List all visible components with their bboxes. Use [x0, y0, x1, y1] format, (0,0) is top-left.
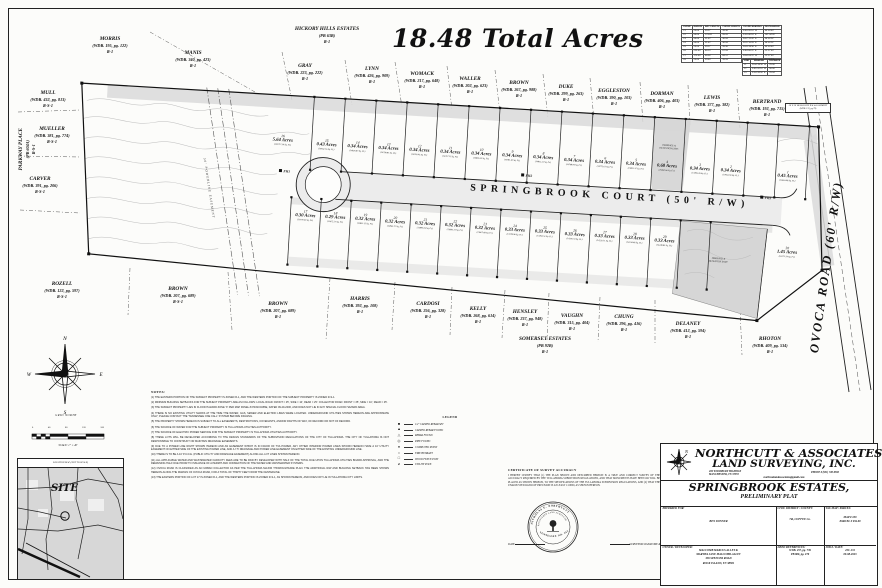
compass-east: E [98, 373, 102, 378]
certification-block: CERTIFICATE OF SURVEY ACCURACY I HEREBY … [508, 468, 660, 488]
neighbor-deed-ref: (WDB. 217, pg. 648) [404, 78, 439, 84]
compass-west: W [27, 373, 32, 378]
neighbor-parcel-label: VAUGHN (WDB. 315, pg. 404) R-1 [554, 313, 589, 331]
legend-item-label: FIRE HYDRANT [415, 452, 433, 455]
legend-block: LEGEND ■ 1/2" CAPPED REBAR SET ▲ CAPPED … [396, 415, 504, 468]
neighbor-parcel-label: LYNN (WDB. 426, pg. 909) R-1 [354, 66, 389, 84]
neighbor-zoning: R-1 [175, 63, 210, 69]
neighbor-deed-ref: (WDB. 377, pg. 382) [694, 102, 729, 108]
company-row: N NORTHCUTT & ASSOCIATES LAND SURVEYING,… [661, 444, 877, 481]
project-subtitle: PRELIMINARY PLAT [661, 494, 877, 500]
fire-hydrant-marker: FH3 [760, 196, 771, 201]
note-item: (8) THESE LOTS WILL BE DEVELOPED ACCORDI… [151, 436, 389, 443]
neighbor-name: DELANEY [670, 321, 705, 328]
prepared-for-cell: PREPARED FOR: BEN DONNER [661, 506, 777, 546]
neighbor-zoning: R-1 [752, 349, 787, 355]
neighbor-zoning: R-S-1 [30, 103, 65, 109]
owner-line: ROCK ISLAND, TN 38581 [661, 562, 776, 566]
neighbor-zoning: R-1 [644, 104, 679, 110]
neighbor-zoning: R-1 [460, 319, 495, 325]
neighbor-zoning: R-S-1 [44, 294, 79, 300]
neighbor-name: PARKWAY PLACE [18, 128, 25, 170]
surveyor-seal: NICHOLAS E. NORTHCUTT REGISTERED LAND SU… [525, 499, 581, 555]
legend-symbol-icon: ○ [396, 452, 402, 456]
grid-north-caption: GRID NORTH [30, 414, 102, 417]
neighbor-parcel-label: RHOTON (WDB. 409, pg. 534) R-1 [752, 336, 787, 354]
neighbor-parcel-label: CARVER (WDB. 391, pg. 206) R-S-1 [22, 176, 57, 194]
owner-cell: OWNER / DEVELOPER: MALCOMB MARCUS ALLEY … [661, 545, 777, 585]
certification-title: CERTIFICATE OF SURVEY ACCURACY [508, 468, 660, 472]
neighbor-name: LEWIS [694, 95, 729, 102]
neighbor-zoning: R-1 [295, 39, 359, 45]
neighbor-parcel-label: CARDOSI (WDB. 256, pg. 328) R-1 [410, 301, 445, 319]
scale-tick-label: 120 [82, 426, 86, 429]
neighbor-name: HICKORY HILLS ESTATES [295, 26, 359, 33]
neighbor-deed-ref: (WDB. 256, pg. 328) [410, 308, 445, 314]
legend-symbol-icon: □ [396, 457, 402, 461]
neighbor-name: BERTRAND [749, 99, 784, 106]
compass-rose: N S W E [25, 330, 105, 420]
neighbor-parcel-label: HENSLEY (WDB. 237, pg. 948) R-1 [507, 309, 542, 327]
neighbor-name: RHOTON [752, 336, 787, 343]
job-date-cell: JOB # / DATE: 23C-13109-08-2023 [824, 545, 876, 585]
neighbor-zoning: R-1 [519, 349, 571, 355]
curve-table-header: CHORD LENGTH [721, 26, 742, 30]
neighbor-name: DORMAN [644, 91, 679, 98]
scale-bar [30, 433, 106, 441]
neighbor-parcel-label: MORRIS (WDB. 195, pg. 122) R-1 [92, 36, 127, 54]
company-compass-logo: N [665, 447, 693, 477]
neighbor-name: VAUGHN [554, 313, 589, 320]
neighbor-name: BROWN [260, 301, 295, 308]
lot-label: 2 0.34 Acres (14952.93 Sq. Ft.) [707, 163, 754, 179]
fire-hydrant-label: FH2 [525, 174, 532, 178]
neighbor-deed-ref: (WDB. 122, pg. 597) [44, 288, 79, 294]
note-item: (11) ALL APPLICABLE WATER AND WASTEWATER… [151, 459, 389, 466]
legend-item-label: REBAR FOUND [415, 434, 433, 437]
note-item: (4) THERE IS NO EXISTING UTILITY MARKS A… [151, 412, 389, 419]
neighbor-deed-ref: (WDB. 315, pg. 404) [554, 320, 589, 326]
neighbor-deed-ref: (WDB. 192, pg. 715) [749, 106, 784, 112]
curve-table-wrap: CURVERADIUSARC LENGTHCHORD LENGTHCHORD B… [681, 25, 782, 63]
project-title: SPRINGBROOK ESTATES, [661, 481, 877, 494]
neighbor-parcel-label: BERTRAND (WDB. 192, pg. 715) R-1 [749, 99, 784, 117]
title-block: N NORTHCUTT & ASSOCIATES LAND SURVEYING,… [660, 443, 878, 586]
seal-tree-icon [547, 520, 559, 531]
legend-leader-line [404, 430, 413, 431]
legend-leader-line [404, 464, 413, 465]
neighbor-zoning: R-1 [452, 89, 487, 95]
lot-label: 30 1.45 Acres (63171.54 Sq. Ft.) [764, 245, 811, 261]
project-row: SPRINGBROOK ESTATES, PRELIMINARY PLAT [661, 480, 877, 507]
detention-easement-label: DRAINAGE &DETENTION ESMT. [709, 258, 729, 265]
notes-block: NOTES: (1) THE EASTERN PORTION OF THE SU… [151, 390, 389, 481]
neighbor-deed-ref: (WDB. 296, pg. 416) [606, 321, 641, 327]
neighbor-parcel-label: SOMERSET ESTATES (PB 92B) R-1 [519, 336, 571, 354]
plat-sheet: 18.48 Total Acres CURVERADIUSARC LENGTHC… [0, 0, 882, 588]
neighbor-zoning: R-1 [554, 326, 589, 332]
neighbor-parcel-label: DUKE (WDB. 299, pg. 263) R-1 [548, 84, 583, 102]
neighbor-parcel-label: WOMACK (WDB. 217, pg. 648) R-1 [404, 71, 439, 89]
certification-body: I HEREBY CERTIFY THAT (1) THE PLAN SHOWN… [508, 474, 660, 488]
fire-hydrant-marker: FH2 [521, 173, 532, 178]
curve-table-header: CHORD BEARING [741, 26, 763, 30]
legend-symbol-icon: ▲ [396, 428, 402, 432]
neighbor-parcel-label: CHUNG (WDB. 296, pg. 416) R-1 [606, 314, 641, 332]
lot-label: 29 0.33 Acres (14248.85 Sq. Ft.) [641, 234, 688, 250]
legend-leader-line [404, 453, 413, 454]
neighbor-zoning: R-1 [260, 314, 295, 320]
fire-hydrant-label: FH3 [765, 196, 772, 200]
neighbor-deed-ref: (WDB. 406, pg. 403) [644, 98, 679, 104]
neighbor-deed-ref: (WDB. 409, pg. 534) [752, 343, 787, 349]
neighbor-name: MORRIS [92, 36, 127, 43]
taxmap-cell: TAX MAP / PARCEL: MAP # 109 PARCEL # 034… [824, 506, 876, 546]
neighbor-name: EGGLESTON [596, 88, 631, 95]
legend-item-label: WOOD FENCE POST [415, 458, 439, 461]
neighbor-deed-ref: (WDB. 391, pg. 206) [22, 183, 57, 189]
powerline-easement-lines [195, 88, 272, 296]
legend-item-label: PIPE FOUND [415, 440, 430, 443]
note-item: (9) DUE TO A POWER LINE RIGHT SHOWN HERE… [151, 445, 389, 452]
neighbor-zoning: R-1 [342, 309, 377, 315]
neighbor-name: KELLY [460, 306, 495, 313]
note-item: (10) THERE IS TO BE A 10' P.U.D.E. (PUBL… [151, 453, 389, 456]
legend-symbol-icon: ⌀ [396, 463, 402, 467]
curve-table-header: ARC LENGTH [704, 26, 721, 30]
neighbor-name: HENSLEY [507, 309, 542, 316]
job-line: 09-08-2023 [824, 553, 876, 557]
neighbor-parcel-label: MANIS (WDB. 340, pg. 423) R-1 [175, 50, 210, 68]
legend-leader-line [404, 459, 413, 460]
title-block-grid: PREPARED FOR: BEN DONNER CIVIL DISTRICT … [661, 506, 877, 585]
legend-leader-line [404, 447, 413, 448]
note-item: (12) OVOCA ROAD IS CLASSIFIED AS AN URBA… [151, 467, 389, 474]
company-name-line2: LAND SURVEYING, INC. [695, 458, 873, 470]
legend-item-label: UTILITY POLE [415, 463, 432, 466]
legend-item-label: COMPUTED POINT [415, 446, 437, 449]
neighbor-name: BROWN [160, 286, 195, 293]
neighbor-parcel-label: BROWN (WDB. 267, pg. 988) R-1 [501, 80, 536, 98]
neighbor-name: MANIS [175, 50, 210, 57]
legend-list: ■ 1/2" CAPPED REBAR SET ▲ CAPPED REBAR F… [396, 422, 504, 468]
neighbor-deed-ref: (WDB. 390, pg. 103) [596, 95, 631, 101]
neighbor-name: SOMERSET ESTATES [519, 336, 571, 343]
neighbor-name: CARDOSI [410, 301, 445, 308]
curve-table-header: DELTA ANGLE [763, 26, 781, 30]
note-item: (5) THE PROPERTY SHOWN HEREON IS SUBJECT… [151, 420, 389, 423]
neighbor-parcel-label: EGGLESTON (WDB. 390, pg. 103) R-1 [596, 88, 631, 106]
compass-north: N [62, 336, 67, 342]
neighbor-name: GRAY [287, 63, 322, 70]
site-label: SITE [51, 483, 78, 494]
neighbor-deed-ref: (WDB. 381, pg. 774) [34, 133, 69, 139]
neighbor-parcel-label: HICKORY HILLS ESTATES (PB 63B) R-1 [295, 26, 359, 44]
neighbor-parcel-label: HARRIS (WDB. 392, pg. 108) R-1 [342, 296, 377, 314]
neighbor-parcel-label: DELANEY (WDB. 412, pg. 594) R-1 [670, 321, 705, 339]
neighbor-parcel-label: GRAY (WDB. 223, pg. 222) R-1 [287, 63, 322, 81]
neighbor-name: MULL [30, 90, 65, 97]
line-table-header: DISTANCE [768, 60, 782, 64]
neighbor-parcel-label: PARKWAY PLACE (PB 604A) R-S-1 [18, 128, 36, 170]
lot-label: 16 5.64 Acres (245717.36 Sq. Ft.) [259, 133, 306, 149]
neighbor-zoning: R-1 [354, 79, 389, 85]
neighbor-parcel-label: DORMAN (WDB. 406, pg. 403) R-1 [644, 91, 679, 109]
neighbor-parcel-label: BROWN (WDB. 207, pg. 689) R-1 [260, 301, 295, 319]
total-acres-title: 18.48 Total Acres [392, 24, 644, 53]
neighbor-parcel-label: ROZELL (WDB. 122, pg. 597) R-S-1 [44, 281, 79, 299]
note-item: (3) THE SUBJECT PROPERTY LIES IN FLOOD H… [151, 406, 389, 409]
neighbor-zoning: R-S-1 [31, 128, 37, 170]
neighbor-zoning: R-1 [507, 322, 542, 328]
note-item: (1) THE EASTERN PORTION OF THE SUBJECT P… [151, 396, 389, 399]
legend-item: ⌀ UTILITY POLE [396, 462, 504, 468]
neighbor-name: WALLER [452, 76, 487, 83]
neighbor-name: CARVER [22, 176, 57, 183]
neighbor-deed-ref: (WDB. 340, pg. 423) [175, 57, 210, 63]
neighbor-zoning: R-1 [694, 108, 729, 114]
notes-list: (1) THE EASTERN PORTION OF THE SUBJECT P… [151, 396, 389, 479]
note-item: (6) THE SOURCE OF WATER FOR THE SUBJECT … [151, 426, 389, 429]
neighbor-zoning: R-1 [287, 76, 322, 82]
neighbor-deed-ref: (WDB. 426, pg. 909) [354, 73, 389, 79]
curve-table: CURVERADIUSARC LENGTHCHORD LENGTHCHORD B… [681, 25, 782, 63]
neighbor-parcel-label: WALLER (WDB. 202, pg. 623) R-1 [452, 76, 487, 94]
neighbor-zoning: R-1 [548, 97, 583, 103]
neighbor-parcel-label: LEWIS (WDB. 377, pg. 382) R-1 [694, 95, 729, 113]
location-map: LOCATION MAP (NOT TO SCALE) SITE [17, 458, 124, 580]
neighbor-name: HARRIS [342, 296, 377, 303]
fire-hydrant-marker: FH1 [279, 169, 290, 174]
fire-hydrant-label: FH1 [283, 169, 290, 173]
date-label: DATE [508, 541, 545, 546]
neighbor-zoning: R-S-1 [22, 189, 57, 195]
legend-header: LEGEND [396, 415, 504, 419]
legend-symbol-icon: ● [396, 446, 402, 450]
neighbor-zoning: R-1 [501, 93, 536, 99]
neighbor-deed-ref: (WDB. 195, pg. 122) [92, 43, 127, 49]
legend-leader-line [404, 441, 413, 442]
bellsouth-easement-note: 20' X 30' BELLSOUTH R/W & EASEMENT (WDB.… [785, 103, 831, 113]
scale-tick-label: 40 [48, 426, 50, 429]
note-item: (13) THE EASTERN PORTION OF LOT 17 IS ZO… [151, 476, 389, 479]
lot4-easement-label: DRAINAGE &DETENTION ESMT. [659, 144, 679, 151]
line-table-wrap: LINEBEARINGDISTANCE L1N 04°39'50" W25.00… [742, 59, 782, 76]
neighbor-zoning: R-1 [670, 334, 705, 340]
neighbor-zoning: R-S-1 [34, 139, 69, 145]
note-item: (2) MINIMUM BUILDING SETBACKS FOR THE SU… [151, 401, 389, 404]
signature-row: DATE SURVEYOR SIGNATURE & LIC. # [508, 541, 668, 546]
neighbor-deed-ref: (WDB. 237, pg. 948) [507, 316, 542, 322]
company-phone: PHONE # (931) 728-9500 [811, 471, 839, 474]
neighbor-name: LYNN [354, 66, 389, 73]
scale-caption: SCALE: 1" = 40' [30, 444, 106, 447]
legend-leader-line [404, 435, 413, 436]
neighbor-name: CHUNG [606, 314, 641, 321]
scale-tick-label: 80 [65, 426, 67, 429]
location-map-header: LOCATION MAP (NOT TO SCALE) [18, 459, 123, 468]
lot-label: 1 0.45 Acres (19663.98 Sq. Ft.) [764, 169, 811, 185]
legend-item-label: 1/2" CAPPED REBAR SET [415, 423, 444, 426]
curve-table-header: CURVE [682, 26, 693, 30]
legend-symbol-icon: ◎ [396, 440, 402, 444]
line-table: LINEBEARINGDISTANCE L1N 04°39'50" W25.00… [742, 59, 782, 76]
district-cell: CIVIL DISTRICT / COUNTY: 7th, COFFEE Co. [776, 506, 825, 546]
neighbor-parcel-label: MULL (WDB. 432, pg. 813) R-S-1 [30, 90, 65, 108]
neighbor-deed-ref: (WDB. 207, pg. 689) [160, 293, 195, 299]
neighbor-name: WOMACK [404, 71, 439, 78]
neighbor-name: BROWN [501, 80, 536, 87]
neighbor-deed-ref: (WDB. 207, pg. 689) [260, 308, 295, 314]
note-item: (7) THE SOURCE OF ELECTRIC POWER SERVICE… [151, 431, 389, 434]
neighbor-zoning: R-1 [749, 112, 784, 118]
legend-symbol-icon: ■ [396, 423, 402, 427]
neighbor-deed-ref: (WDB. 299, pg. 263) [548, 91, 583, 97]
deed-line: PB 860, pg. 276 [776, 553, 824, 557]
neighbor-name: MUELLER [34, 126, 69, 133]
neighbor-deed-ref: (WDB. 392, pg. 108) [342, 303, 377, 309]
neighbor-zoning: R-1 [92, 49, 127, 55]
legend-symbol-icon: △ [396, 434, 402, 438]
neighbor-zoning: R-1 [404, 84, 439, 90]
neighbor-parcel-label: BROWN (WDB. 207, pg. 689) R-S-1 [160, 286, 195, 304]
svg-text:N: N [684, 449, 689, 454]
legend-leader-line [404, 424, 413, 425]
neighbor-deed-ref: (WDB. 268, pg. 614) [460, 313, 495, 319]
neighbor-zoning: R-1 [410, 314, 445, 320]
neighbor-zoning: R-1 [606, 327, 641, 333]
scale-ticks: 04080120160 [32, 426, 104, 429]
neighbor-deed-ref: (WDB. 202, pg. 623) [452, 83, 487, 89]
company-email: northcuttandassociates@gmail.com [695, 476, 873, 479]
neighbor-name: ROZELL [44, 281, 79, 288]
curve-table-header: RADIUS [692, 26, 703, 30]
line-table-row: L3S 04°39'50" E25.04' [743, 72, 782, 76]
neighbor-zoning: R-1 [596, 101, 631, 107]
neighbor-parcel-label: MUELLER (WDB. 381, pg. 774) R-S-1 [34, 126, 69, 144]
legend-item-label: CAPPED REBAR FOUND [415, 429, 443, 432]
neighbor-deed-ref: (WDB. 432, pg. 813) [30, 97, 65, 103]
neighbor-deed-ref: (WDB. 267, pg. 988) [501, 87, 536, 93]
notes-header: NOTES: [151, 390, 389, 394]
neighbor-deed-ref: (WDB. 223, pg. 222) [287, 70, 322, 76]
neighbor-parcel-label: KELLY (WDB. 268, pg. 614) R-1 [460, 306, 495, 324]
scale-tick-label: 0 [32, 426, 33, 429]
neighbor-name: DUKE [548, 84, 583, 91]
neighbor-zoning: R-S-1 [160, 299, 195, 305]
deed-cell: DEED REFERENCES: WDB. 457, pg. 739PB 860… [776, 545, 825, 585]
neighbor-deed-ref: (WDB. 412, pg. 594) [670, 328, 705, 334]
scale-tick-label: 160 [100, 426, 104, 429]
